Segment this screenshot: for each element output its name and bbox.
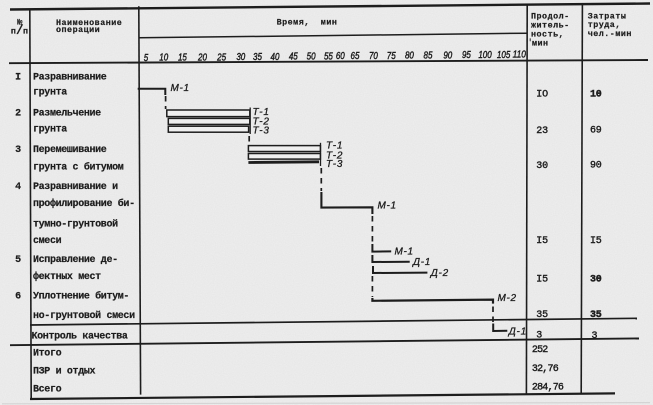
svg-text:32,76: 32,76 [532, 364, 559, 375]
svg-text:': ' [528, 38, 533, 48]
svg-text:Т-3: Т-3 [253, 125, 270, 136]
svg-text:55: 55 [324, 51, 333, 62]
svg-text:тумно-грунтовой: тумно-грунтовой [33, 218, 118, 230]
svg-text:10: 10 [159, 53, 168, 64]
svg-text:40: 40 [271, 52, 280, 63]
svg-text:Перемешивание: Перемешивание [33, 145, 107, 156]
svg-text:Т-3: Т-3 [326, 159, 343, 170]
svg-text:35: 35 [590, 310, 602, 321]
svg-text:70: 70 [369, 51, 378, 62]
svg-text:69: 69 [590, 126, 602, 137]
svg-text:30: 30 [590, 274, 602, 285]
svg-text:Контроль качества: Контроль качества [32, 332, 128, 343]
svg-text:Исправление де-: Исправление де- [33, 255, 118, 266]
svg-text:25: 25 [216, 52, 226, 63]
svg-text:Д-2: Д-2 [430, 268, 449, 279]
svg-text:2: 2 [15, 108, 21, 119]
svg-text:252: 252 [532, 345, 548, 356]
svg-text:ПЗР и отдых: ПЗР и отдых [33, 366, 96, 377]
svg-text:I5: I5 [590, 236, 602, 247]
svg-text:фектных мест: фектных мест [33, 270, 101, 283]
svg-text:95: 95 [462, 50, 471, 61]
svg-text:Разравнивание и: Разравнивание и [33, 182, 118, 193]
svg-text:20: 20 [197, 52, 207, 63]
svg-text:100: 100 [478, 50, 492, 61]
svg-text:I5: I5 [536, 274, 548, 285]
svg-text:мин: мин [532, 39, 549, 49]
svg-text:профилирование би-: профилирование би- [33, 197, 135, 210]
svg-text:15: 15 [178, 53, 187, 64]
svg-text:Разравнивание: Разравнивание [33, 73, 107, 84]
svg-text:Итого: Итого [33, 349, 62, 360]
svg-text:Всего: Всего [33, 384, 62, 395]
svg-text:М-1: М-1 [378, 201, 397, 212]
svg-text:50: 50 [307, 52, 316, 63]
svg-text:Размельчение: Размельчение [33, 108, 101, 119]
svg-text:10: 10 [590, 90, 602, 101]
svg-text:30: 30 [536, 161, 548, 172]
svg-text:23: 23 [536, 126, 548, 137]
svg-text:операции: операции [56, 25, 100, 35]
svg-text:грунта: грунта [33, 125, 67, 136]
svg-text:65: 65 [351, 51, 360, 62]
svg-text:Время, мин: Время, мин [277, 17, 338, 27]
svg-text:110: 110 [513, 50, 527, 61]
svg-text:Д-1: Д-1 [508, 326, 527, 337]
svg-text:Д-1: Д-1 [412, 257, 431, 268]
svg-text:80: 80 [405, 51, 414, 62]
svg-text:35: 35 [536, 310, 548, 321]
svg-text:I: I [15, 73, 21, 84]
svg-text:90: 90 [590, 161, 602, 172]
svg-text:6: 6 [15, 292, 21, 303]
svg-text:5: 5 [15, 255, 21, 266]
svg-text:45: 45 [289, 52, 298, 63]
svg-text:3: 3 [536, 330, 542, 341]
svg-text:5: 5 [144, 53, 149, 64]
svg-text:но-грунтовой смеси: но-грунтовой смеси [33, 310, 135, 322]
svg-text:85: 85 [424, 51, 433, 62]
svg-text:90: 90 [443, 50, 452, 61]
svg-text:60: 60 [336, 51, 345, 62]
svg-text:3: 3 [15, 145, 21, 156]
svg-text:Уплотнение битум-: Уплотнение битум- [33, 290, 129, 303]
svg-text:грунта: грунта [33, 87, 67, 98]
svg-text:3: 3 [592, 331, 598, 342]
svg-text:105: 105 [497, 50, 511, 61]
svg-text:4: 4 [15, 182, 21, 193]
svg-text:М-2: М-2 [498, 293, 517, 304]
svg-text:чел.-мин: чел.-мин [588, 29, 632, 39]
svg-text:284,76: 284,76 [532, 382, 564, 393]
svg-text:35: 35 [253, 52, 262, 63]
svg-text:М-1: М-1 [395, 246, 414, 257]
svg-text:75: 75 [387, 51, 396, 62]
svg-text:п: п [23, 27, 29, 37]
svg-text:30: 30 [236, 52, 245, 63]
svg-text:смеси: смеси [33, 236, 62, 247]
svg-text:М-1: М-1 [171, 83, 190, 94]
svg-text:I5: I5 [536, 236, 548, 247]
svg-text:грунта с битумом: грунта с битумом [33, 161, 124, 174]
svg-text:IO: IO [536, 90, 548, 101]
